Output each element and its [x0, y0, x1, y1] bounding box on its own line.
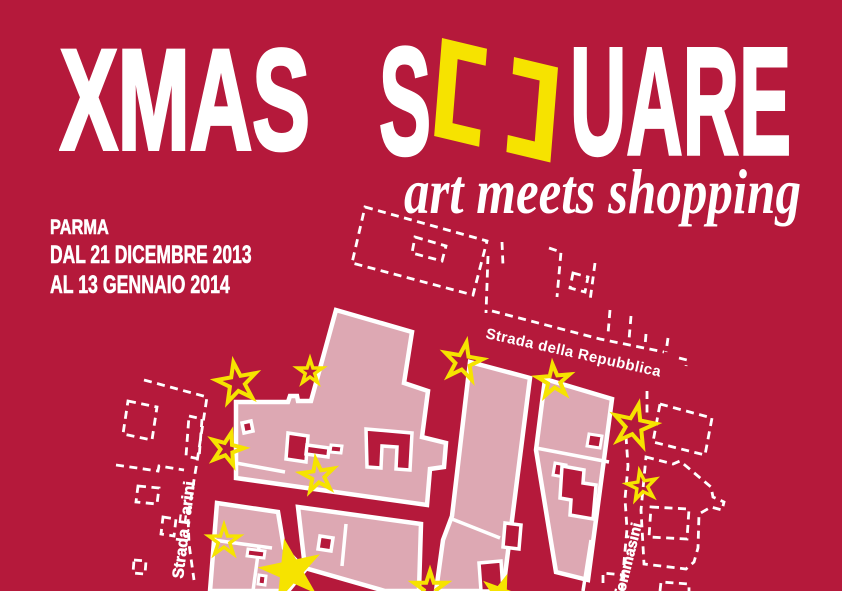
- svg-text:Tommasini: Tommasini: [610, 521, 645, 591]
- svg-text:Strada Farini: Strada Farini: [170, 480, 199, 579]
